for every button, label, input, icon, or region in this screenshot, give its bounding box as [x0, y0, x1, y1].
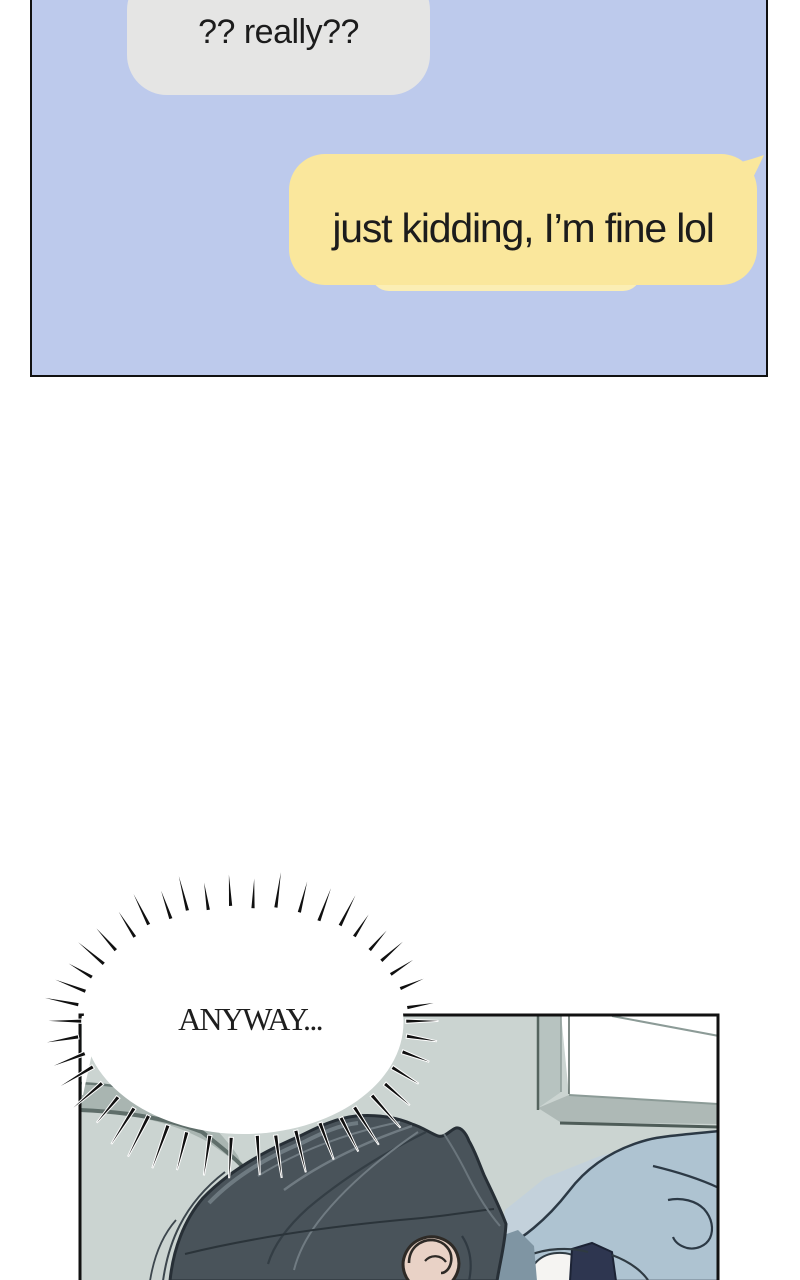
svg-text:ANYWAY...: ANYWAY...	[178, 1001, 322, 1037]
